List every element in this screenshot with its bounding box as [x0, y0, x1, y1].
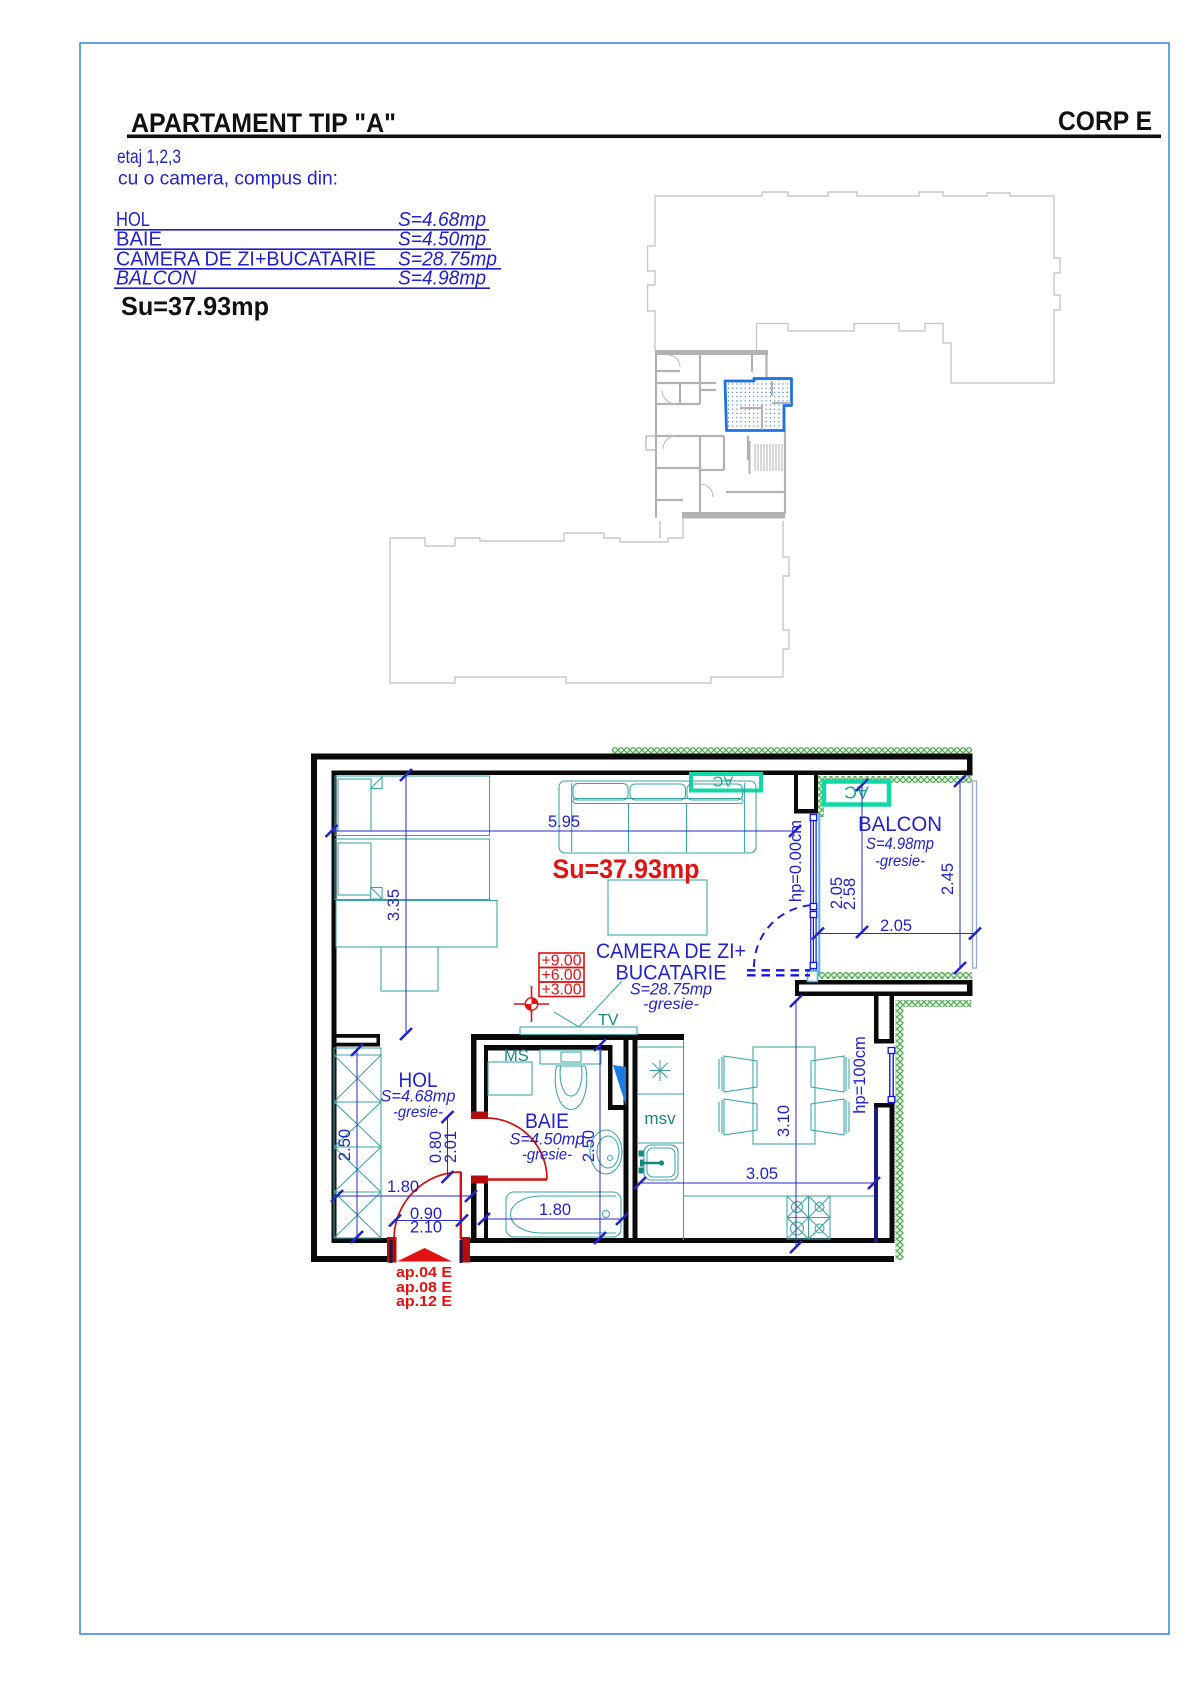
svg-text:2.01: 2.01: [442, 1131, 460, 1163]
svg-text:2.05: 2.05: [880, 917, 912, 935]
svg-text:hp=100cm: hp=100cm: [851, 1036, 869, 1114]
svg-text:S=4.98mp: S=4.98mp: [866, 835, 934, 853]
svg-text:+3.00: +3.00: [542, 982, 582, 999]
svg-text:BALCON: BALCON: [116, 268, 197, 290]
svg-text:-gresie-: -gresie-: [393, 1104, 443, 1121]
svg-text:3.10: 3.10: [775, 1105, 793, 1137]
svg-text:-gresie-: -gresie-: [875, 853, 925, 870]
svg-text:ap.04 E: ap.04 E: [396, 1265, 452, 1281]
svg-text:AC: AC: [844, 783, 868, 803]
svg-text:CAMERA DE ZI+: CAMERA DE ZI+: [596, 940, 746, 963]
svg-text:3.05: 3.05: [746, 1165, 778, 1183]
svg-text:MS: MS: [504, 1047, 529, 1065]
svg-text:2.58: 2.58: [841, 878, 859, 910]
svg-text:AC: AC: [713, 772, 733, 788]
svg-text:TV: TV: [598, 1012, 619, 1029]
svg-text:-gresie-: -gresie-: [522, 1147, 572, 1164]
svg-text:CORP E: CORP E: [1058, 106, 1152, 136]
svg-text:Su=37.93mp: Su=37.93mp: [121, 291, 269, 321]
svg-text:S=4.98mp: S=4.98mp: [398, 268, 486, 290]
svg-text:2.45: 2.45: [939, 863, 957, 895]
svg-text:1.80: 1.80: [387, 1178, 419, 1196]
svg-text:5.95: 5.95: [548, 813, 580, 831]
svg-text:cu o camera, compus din:: cu o camera, compus din:: [118, 168, 338, 190]
svg-text:2.50: 2.50: [336, 1129, 354, 1161]
svg-text:1.80: 1.80: [539, 1201, 571, 1219]
svg-text:msv: msv: [644, 1109, 676, 1128]
svg-text:etaj 1,2,3: etaj 1,2,3: [117, 146, 181, 168]
svg-text:BAIE: BAIE: [116, 229, 162, 251]
svg-text:APARTAMENT TIP "A": APARTAMENT TIP "A": [131, 108, 396, 138]
svg-text:Su=37.93mp: Su=37.93mp: [553, 854, 700, 884]
svg-text:BALCON: BALCON: [858, 813, 942, 836]
svg-text:hp=0.00cm: hp=0.00cm: [787, 820, 805, 902]
svg-text:S=4.50mp: S=4.50mp: [398, 229, 486, 251]
svg-text:S=4.68mp: S=4.68mp: [381, 1087, 456, 1106]
svg-text:-gresie-: -gresie-: [643, 996, 699, 1013]
svg-text:ap.12 E: ap.12 E: [396, 1294, 452, 1310]
svg-text:3.35: 3.35: [385, 889, 403, 921]
svg-text:2.10: 2.10: [410, 1219, 442, 1237]
